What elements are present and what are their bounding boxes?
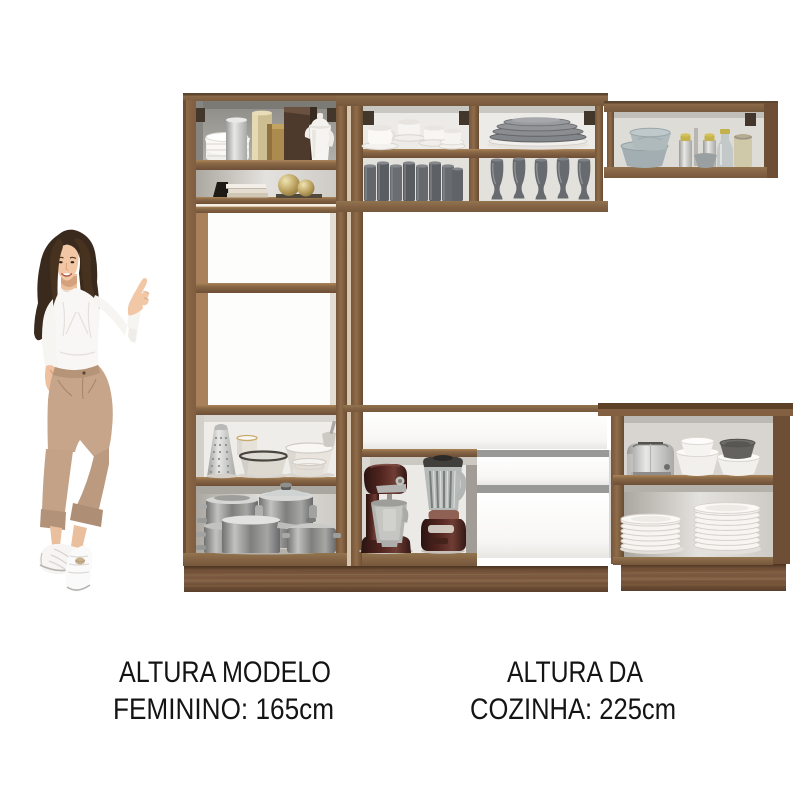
svg-text:COZINHA: 225cm: COZINHA: 225cm — [470, 693, 676, 726]
svg-text:ALTURA MODELO: ALTURA MODELO — [119, 656, 331, 689]
svg-text:FEMININO: 165cm: FEMININO: 165cm — [113, 693, 334, 726]
svg-text:ALTURA DA: ALTURA DA — [507, 656, 643, 689]
